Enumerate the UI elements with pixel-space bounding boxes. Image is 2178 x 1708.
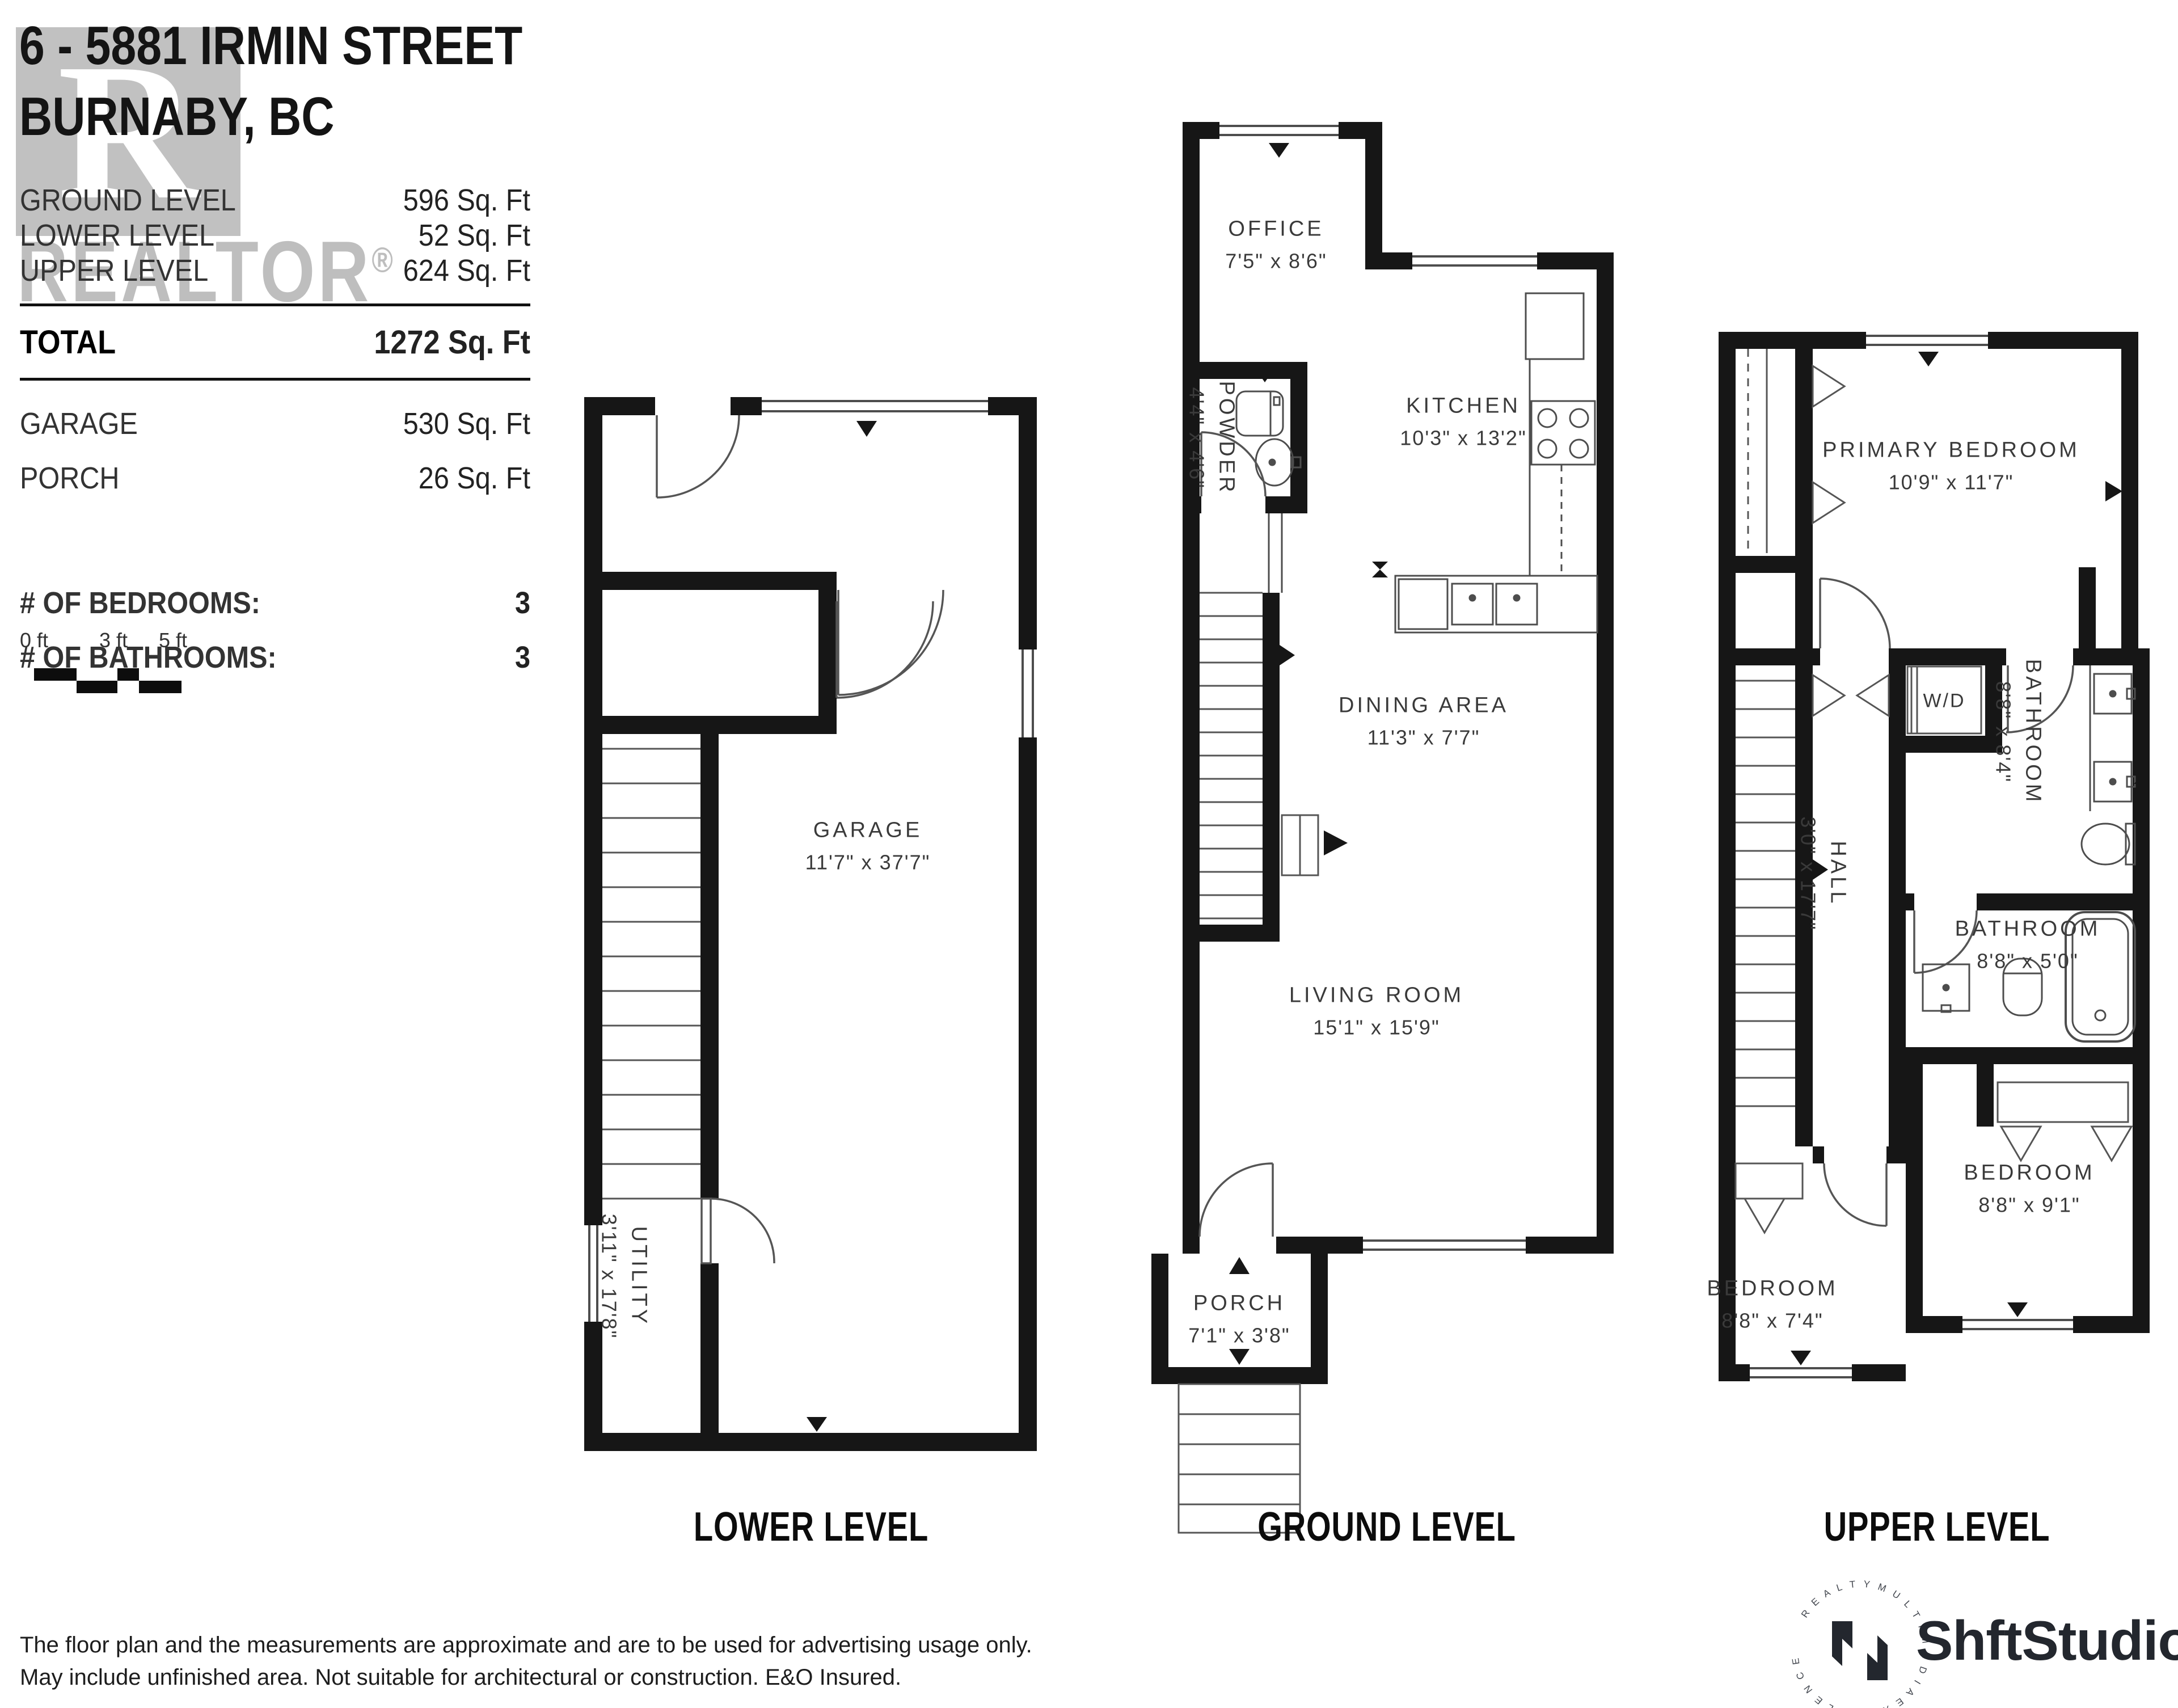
studio-logo-text: ShftStudio — [1916, 1609, 2178, 1673]
room-label-primary-bedroom: PRIMARY BEDROOM10'9" x 11'7" — [1822, 438, 2080, 495]
sink-icon — [1452, 584, 1493, 625]
room-label-garage: GARAGE11'7" x 37'7" — [805, 819, 931, 875]
toilet-icon — [2082, 824, 2129, 864]
garage-door — [762, 401, 988, 411]
level-title-upper: UPPER LEVEL — [1824, 1504, 2050, 1550]
room-label-kitchen: KITCHEN10'3" x 13'2" — [1400, 394, 1526, 450]
stair-railing — [1269, 513, 1282, 593]
level-title-lower: LOWER LEVEL — [694, 1504, 928, 1550]
front-door — [1200, 1163, 1273, 1237]
room-label-ensuite-bathroom: 8'8" x 8'4"BATHROOM — [1991, 659, 2093, 805]
room-label-bedroom-3: BEDROOM8'8" x 7'4" — [1707, 1277, 1838, 1333]
room-label-living: LIVING ROOM15'1" x 15'9" — [1289, 984, 1464, 1040]
linen-closet-doors — [1813, 675, 1889, 716]
closet-door-icon — [2092, 1127, 2131, 1161]
closet-door-icon — [1813, 366, 1844, 407]
ground-markers — [1229, 143, 1613, 1365]
room-label-utility: 3'11" x 17'8"UTILITY — [597, 1214, 699, 1339]
room-label-wd: W/D — [1923, 690, 1965, 712]
ground-walls — [1151, 122, 1614, 1384]
room-label-office: OFFICE7'5" x 8'6" — [1225, 217, 1327, 273]
fridge-icon — [1526, 293, 1584, 359]
studio-logo: R E A L T Y M U L T I M E D I A E X C E … — [1789, 1579, 1931, 1708]
kitchen-fixtures — [1395, 293, 1597, 632]
room-label-porch: PORCH7'1" x 3'8" — [1188, 1292, 1290, 1348]
room-label-hall-bathroom: BATHROOM8'8" x 5'0" — [1955, 917, 2101, 973]
disclaimer-line-1: The floor plan and the measurements are … — [20, 1633, 1032, 1658]
svg-text:R E A L T Y M U L T I M E D: R E A L T Y M U L T I M E D I A E X C E … — [1789, 1579, 1931, 1708]
level-title-ground: GROUND LEVEL — [1257, 1504, 1516, 1550]
upper-stairs — [1736, 681, 1795, 1106]
stair-landing — [1282, 815, 1348, 875]
sink-icon — [1496, 584, 1537, 625]
lower-stairs — [602, 749, 700, 1199]
studio-logo-glyph-icon — [1832, 1621, 1888, 1680]
room-label-bedroom-2: BEDROOM8'8" x 9'1" — [1964, 1161, 2095, 1217]
ground-stairs — [1200, 593, 1263, 918]
closet-door-icon — [1745, 1199, 1784, 1233]
room-label-hall: 3'0" x 17'7"HALL — [1796, 816, 1898, 930]
closet-door-icon — [2001, 1127, 2041, 1161]
room-label-dining: DINING AREA11'3" x 7'7" — [1339, 694, 1509, 750]
logo-ring-text: R E A L T Y M U L T I M E D I A E X C E … — [1789, 1579, 1931, 1708]
room-label-powder: 4'4" x 4'6"POWDER — [1185, 381, 1286, 495]
disclaimer-line-2: May include unfinished area. Not suitabl… — [20, 1665, 901, 1690]
microwave-icon — [1399, 579, 1447, 629]
